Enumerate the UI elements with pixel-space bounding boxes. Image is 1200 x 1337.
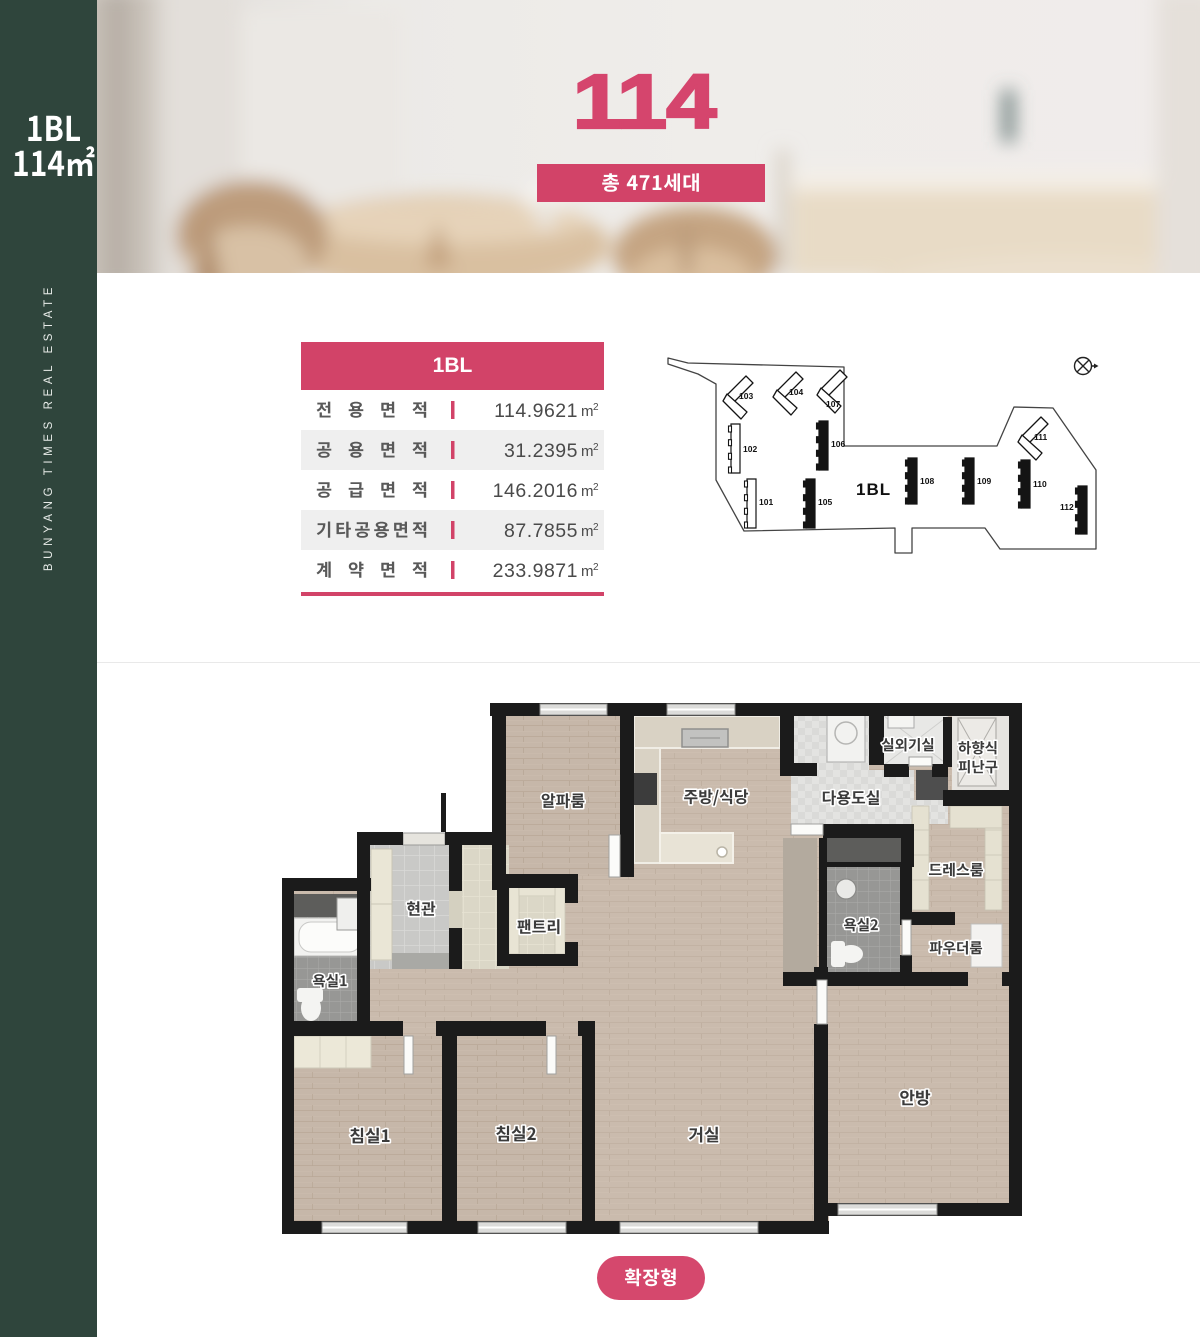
svg-text:m: m <box>581 403 594 420</box>
svg-text:m: m <box>581 563 594 580</box>
svg-text:106: 106 <box>831 439 845 449</box>
svg-text:112: 112 <box>1060 502 1074 512</box>
svg-text:114.9621: 114.9621 <box>494 400 578 422</box>
svg-text:87.7855: 87.7855 <box>504 520 578 542</box>
svg-text:102: 102 <box>743 444 757 454</box>
svg-text:2: 2 <box>593 442 599 453</box>
svg-text:m: m <box>581 483 594 500</box>
svg-text:2: 2 <box>593 522 599 533</box>
svg-text:110: 110 <box>1033 479 1047 489</box>
svg-text:1BL: 1BL <box>856 480 891 499</box>
svg-text:108: 108 <box>920 476 934 486</box>
svg-text:m: m <box>581 443 594 460</box>
svg-text:104: 104 <box>789 387 803 397</box>
svg-text:m: m <box>581 523 594 540</box>
svg-text:105: 105 <box>818 497 832 507</box>
svg-text:146.2016: 146.2016 <box>493 480 578 502</box>
svg-text:103: 103 <box>739 391 753 401</box>
svg-text:111: 111 <box>1034 432 1048 442</box>
svg-text:2: 2 <box>593 562 599 573</box>
svg-text:109: 109 <box>977 476 991 486</box>
svg-text:2: 2 <box>593 402 599 413</box>
svg-text:101: 101 <box>759 497 773 507</box>
svg-text:31.2395: 31.2395 <box>504 440 578 462</box>
svg-text:2: 2 <box>593 482 599 493</box>
svg-text:233.9871: 233.9871 <box>493 560 578 582</box>
svg-text:107: 107 <box>826 399 840 409</box>
